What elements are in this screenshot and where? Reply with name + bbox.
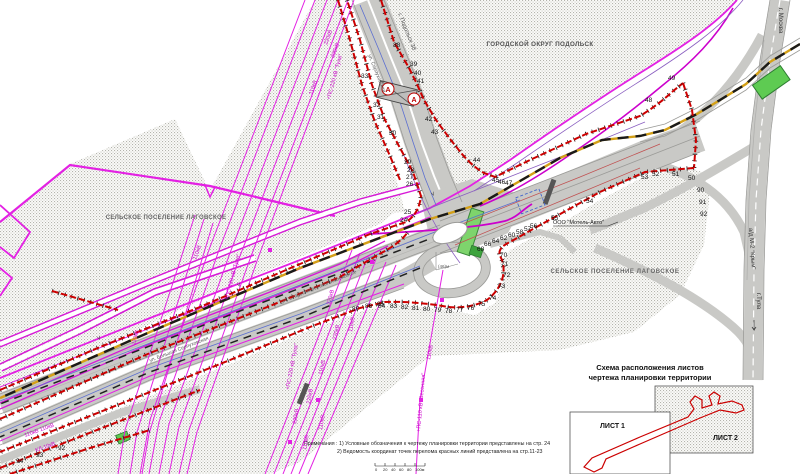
svg-text:100м: 100м: [415, 467, 425, 472]
svg-text:28: 28: [407, 167, 415, 174]
svg-text:38: 38: [393, 42, 401, 49]
svg-text:52: 52: [652, 171, 660, 178]
svg-text:32: 32: [373, 102, 381, 109]
svg-text:29: 29: [404, 159, 412, 166]
svg-text:А: А: [411, 97, 416, 104]
svg-text:41: 41: [417, 78, 425, 85]
svg-text:91: 91: [699, 199, 707, 206]
svg-text:51: 51: [672, 171, 680, 178]
svg-text:г. Москва: г. Москва: [777, 8, 783, 34]
svg-text:74: 74: [489, 295, 497, 302]
svg-text:47: 47: [505, 180, 513, 187]
svg-text:53: 53: [641, 174, 649, 181]
svg-text:85: 85: [377, 301, 385, 308]
svg-text:СЕЛЬСКОЕ ПОСЕЛЕНИЕ ЛАГОВСКОЕ: СЕЛЬСКОЕ ПОСЕЛЕНИЕ ЛАГОВСКОЕ: [106, 215, 227, 221]
svg-text:94: 94: [16, 458, 24, 465]
svg-text:83: 83: [390, 303, 398, 310]
svg-text:55: 55: [551, 215, 559, 222]
svg-text:82: 82: [401, 304, 409, 311]
svg-text:ГОРОДСКОЙ ОКРУГ ПОДОЛЬСК: ГОРОДСКОЙ ОКРУГ ПОДОЛЬСК: [486, 40, 593, 48]
svg-text:(46)м: (46)м: [438, 264, 449, 269]
svg-text:Схема расположения листов: Схема расположения листов: [596, 363, 704, 372]
svg-text:50: 50: [688, 175, 696, 182]
svg-text:56: 56: [530, 223, 538, 230]
svg-text:75: 75: [478, 301, 486, 308]
svg-text:ООО "Мотель-Авто": ООО "Мотель-Авто": [553, 220, 604, 226]
svg-text:73: 73: [498, 283, 506, 290]
svg-text:80: 80: [423, 306, 431, 313]
svg-text:СЕЛЬСКОЕ ПОСЕЛЕНИЕ ЛАГОВСКОЕ: СЕЛЬСКОЕ ПОСЕЛЕНИЕ ЛАГОВСКОЕ: [551, 269, 680, 275]
svg-text:86: 86: [365, 303, 373, 310]
svg-text:27: 27: [406, 174, 414, 181]
svg-text:62: 62: [500, 235, 508, 242]
svg-text:24: 24: [400, 217, 408, 224]
svg-text:40: 40: [391, 467, 396, 472]
svg-text:чертежа планировки территории: чертежа планировки территории: [589, 373, 712, 382]
svg-text:25: 25: [404, 209, 412, 216]
svg-text:70: 70: [500, 252, 508, 259]
svg-text:43: 43: [431, 129, 439, 136]
svg-text:42: 42: [425, 116, 433, 123]
svg-text:78: 78: [445, 308, 453, 315]
svg-text:77: 77: [456, 307, 464, 314]
svg-text:39: 39: [410, 61, 418, 68]
svg-text:87: 87: [352, 306, 360, 313]
svg-text:71: 71: [501, 261, 509, 268]
svg-text:80: 80: [407, 467, 412, 472]
svg-text:76: 76: [467, 305, 475, 312]
svg-text:90: 90: [697, 187, 705, 194]
svg-text:ЛИСТ 2: ЛИСТ 2: [713, 435, 738, 442]
svg-text:2) Ведомость координат точек п: 2) Ведомость координат точек перелома кр…: [337, 448, 543, 455]
svg-text:92: 92: [58, 445, 66, 452]
svg-text:60: 60: [508, 232, 516, 239]
svg-text:49: 49: [668, 75, 676, 82]
svg-text:ЛИСТ 1: ЛИСТ 1: [600, 423, 625, 430]
svg-text:81: 81: [412, 305, 420, 312]
svg-text:48: 48: [645, 97, 653, 104]
svg-text:66: 66: [484, 241, 492, 248]
svg-text:30: 30: [389, 130, 397, 137]
svg-text:79: 79: [434, 307, 442, 314]
svg-text:26: 26: [406, 181, 414, 188]
svg-text:31: 31: [377, 114, 385, 121]
svg-text:60: 60: [399, 467, 404, 472]
svg-text:64: 64: [492, 238, 500, 245]
svg-text:72: 72: [503, 272, 511, 279]
svg-text:33: 33: [361, 73, 369, 80]
svg-text:40: 40: [414, 70, 422, 77]
svg-text:г.Тула: г.Тула: [755, 293, 761, 310]
svg-text:20: 20: [383, 467, 388, 472]
svg-text:Примечания : 1) Условные обозн: Примечания : 1) Условные обозначения к ч…: [304, 441, 550, 447]
svg-text:54: 54: [586, 198, 594, 205]
svg-text:92: 92: [700, 211, 708, 218]
svg-text:44: 44: [473, 157, 481, 164]
svg-text:58: 58: [516, 229, 524, 236]
